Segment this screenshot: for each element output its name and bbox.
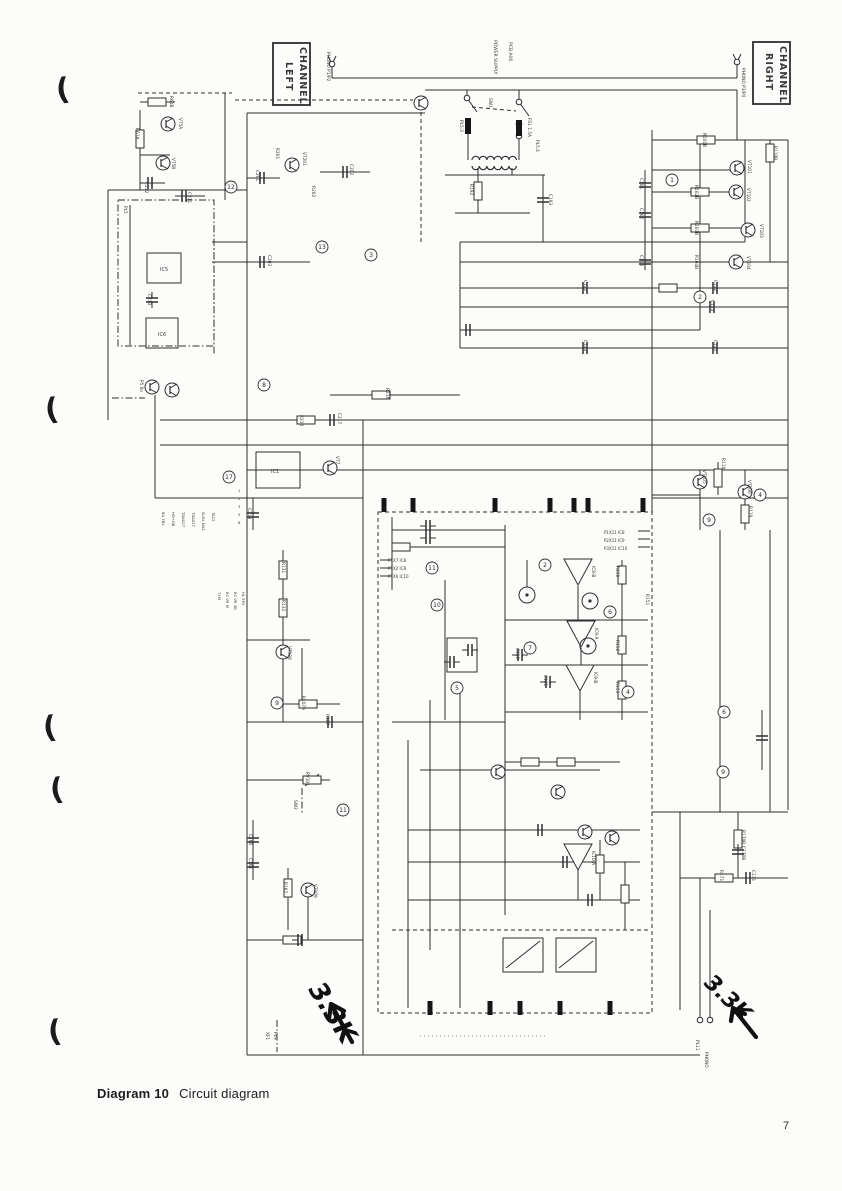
handwritten-3k3-annotation: 3.3K <box>697 971 758 1027</box>
circled-ref-text: 6 <box>722 709 726 716</box>
component-label: FS1 1.5A <box>526 118 532 137</box>
component-label: C202 <box>348 164 354 175</box>
resistor-symbol <box>715 874 733 882</box>
component-label: VT5B <box>170 158 176 169</box>
component-label: R119 <box>747 506 753 517</box>
circled-ref-text: 2 <box>543 562 547 569</box>
circled-ref-text: 4 <box>758 492 762 499</box>
component-label: C211 <box>186 192 192 203</box>
opamp-symbol <box>564 559 592 585</box>
component-label: C110 <box>638 255 644 266</box>
circled-ref-text: 3 <box>369 252 373 259</box>
handwritten-3k3-annotation: 3.3K <box>301 979 365 1049</box>
transformer-coil <box>472 156 516 160</box>
transistor-symbol <box>156 156 170 170</box>
component-label: C101 <box>638 178 644 189</box>
terminal-circle <box>464 95 470 101</box>
connector-pin <box>428 1001 433 1015</box>
binding-mark: ( <box>54 72 71 108</box>
page-number: 7 <box>783 1120 789 1132</box>
opamp-symbol <box>566 665 594 691</box>
component-label: SL84 MA1 <box>201 512 206 531</box>
component-label: R101B <box>701 133 707 147</box>
transistor-symbol <box>161 117 175 131</box>
transistor-symbol <box>145 380 159 394</box>
component-label: C193 <box>547 194 553 205</box>
component-label: R107A <box>300 696 306 710</box>
transistor-symbol <box>741 223 755 237</box>
component-label: P5 6n <box>138 380 144 392</box>
connector-circle <box>588 599 591 602</box>
component-label: R131 <box>280 562 286 573</box>
schematic-wire <box>506 941 540 968</box>
terminal-circle <box>697 1017 703 1023</box>
circled-ref-text: 8 <box>262 382 266 389</box>
component-label: R171 <box>718 870 724 881</box>
component-label: PL5:4 <box>534 140 540 152</box>
circled-ref-text: 4 <box>626 689 630 696</box>
component-label: C122 <box>712 280 718 291</box>
component-label: IC1 <box>271 469 279 475</box>
transistor-symbol <box>729 185 743 199</box>
component-label: T.H5 <box>217 591 222 601</box>
component-label: IC6 <box>158 332 166 338</box>
component-label: R150 <box>614 566 620 577</box>
resistor-symbol <box>392 543 410 551</box>
component-label: C170B <box>740 846 746 860</box>
component-label: C213 <box>146 294 152 305</box>
component-label: POWER SUPPLY <box>492 40 498 75</box>
schematic-wire <box>472 107 516 111</box>
component-label: R61B <box>168 96 174 107</box>
component-label: P1X11 IC8 <box>604 530 625 535</box>
transistor-symbol <box>551 785 565 799</box>
component-label: R118 <box>720 458 726 469</box>
component-label: R152 <box>614 640 620 651</box>
resistor-symbol <box>474 182 482 200</box>
component-label: PHONO P1/P2 <box>325 52 331 82</box>
connector-pin <box>548 498 553 512</box>
component-label: IC5 <box>160 267 168 273</box>
component-label: R110B <box>772 146 778 160</box>
circled-ref-text: 9 <box>275 700 279 707</box>
component-label: 5 <box>238 512 241 517</box>
component-label: PCB A06 <box>507 42 513 61</box>
transistor-symbol <box>578 825 592 839</box>
connector-pin <box>518 1001 523 1015</box>
connector-circle <box>586 644 589 647</box>
component-label: P3X11 IC10 <box>604 546 628 551</box>
component-label: VT102 <box>745 188 751 202</box>
component-label: C212 <box>143 182 149 193</box>
component-label: R201 <box>274 148 280 159</box>
circled-ref-text: 9 <box>721 769 725 776</box>
component-label: C217 <box>336 413 342 424</box>
transistor-symbol <box>491 765 505 779</box>
connector-pin <box>586 498 591 512</box>
schematic-wire <box>559 941 593 968</box>
scanned-page: 12133817911129694105764211LEFTCHANNELRIG… <box>0 0 842 1191</box>
connector-pin <box>411 498 416 512</box>
component-label: R103B <box>693 221 699 235</box>
component-label: C171 <box>750 870 756 881</box>
circled-ref-text: 13 <box>318 244 326 251</box>
resistor-symbol <box>148 98 166 106</box>
component-label: PL9 <box>272 1032 278 1040</box>
component-label: IC9-B <box>592 672 598 683</box>
circled-ref-text: 11 <box>339 807 347 814</box>
component-label: PL5:3 <box>458 120 464 132</box>
component-label: LEFT <box>283 62 294 92</box>
binding-mark: ( <box>48 772 65 808</box>
component-label: C150 <box>514 648 520 659</box>
component-label: R170B <box>740 830 746 844</box>
component-label: R162 <box>282 882 288 893</box>
component-label: RIGHT <box>763 53 774 91</box>
component-label: XF1 <box>264 1032 270 1040</box>
connector-circle <box>525 593 528 596</box>
resistor-symbol <box>596 855 604 873</box>
transistor-symbol <box>605 831 619 845</box>
resistor-symbol <box>659 284 677 292</box>
component-label: C102 <box>638 208 644 219</box>
component-label: PL5 <box>122 206 128 214</box>
circled-ref-text: 17 <box>225 474 233 481</box>
transformer-coil <box>472 166 516 170</box>
component-label: C124 <box>582 340 588 351</box>
component-label: IC8-B <box>590 566 596 577</box>
connector-pin <box>558 1001 563 1015</box>
component-label: R216 <box>384 388 390 399</box>
component-label: TDA027 <box>191 511 196 528</box>
component-label: 6 <box>238 520 241 525</box>
resistor-symbol <box>621 885 629 903</box>
binding-mark: ( <box>43 392 60 428</box>
connector-pin <box>572 498 577 512</box>
component-label: CHANNEL <box>777 46 788 104</box>
fuse-symbol <box>516 120 522 136</box>
component-label: R202 <box>310 186 316 197</box>
component-label: VT106 <box>746 480 752 494</box>
connector-pin <box>488 1001 493 1015</box>
component-label: VT108 <box>286 646 292 660</box>
component-label: R61A <box>134 128 140 139</box>
terminal-circle <box>734 59 740 65</box>
component-label: IC9-A <box>593 628 599 639</box>
component-label: 1 <box>238 488 241 493</box>
component-label: VT7 <box>334 456 340 465</box>
diagram-caption: Diagram 10Circuit diagram <box>97 1086 270 1101</box>
component-label: C151 <box>542 675 548 686</box>
component-label: HL 5PV <box>241 592 246 606</box>
component-label: 3 <box>238 504 241 509</box>
component-label: C107 <box>324 714 330 725</box>
component-label: CHANNEL <box>297 47 308 105</box>
diagram-caption-text: Circuit diagram <box>179 1086 269 1101</box>
component-label: SW2 <box>292 800 298 810</box>
circled-ref-text: 11 <box>428 565 436 572</box>
component-label: P1X7 IC8 <box>388 558 406 563</box>
component-label: P1X2 IC8 <box>388 566 406 571</box>
connector-pin <box>608 1001 613 1015</box>
component-label: VT103 <box>758 224 764 238</box>
component-label: SW1 <box>487 98 493 108</box>
resistor-symbol <box>521 758 539 766</box>
connector-pin <box>382 498 387 512</box>
binding-mark: ( <box>46 1014 63 1050</box>
component-label: VT109 <box>312 884 318 898</box>
terminal-circle <box>516 99 522 105</box>
component-label: C161 <box>247 858 253 869</box>
component-label: TDA027 <box>181 511 186 528</box>
component-label: VT104 <box>745 256 751 270</box>
component-label: PHONO P3/P4 <box>740 68 746 98</box>
diagram-caption-number: Diagram 10 <box>97 1086 169 1101</box>
component-label: HD+D8 <box>171 512 176 527</box>
circled-ref-text: 1 <box>670 177 674 184</box>
component-label: RV101 <box>304 772 310 786</box>
component-label: R153 <box>614 682 620 693</box>
component-label: PL11 <box>694 1040 700 1051</box>
binding-mark: ( <box>41 710 58 746</box>
transistor-symbol <box>165 383 179 397</box>
circled-ref-text: 2 <box>698 294 702 301</box>
component-label: TA12 <box>211 511 216 522</box>
transistor-symbol <box>285 158 299 172</box>
component-label: C125 <box>712 340 718 351</box>
component-label: C201 <box>254 170 260 181</box>
transistor-symbol <box>729 255 743 269</box>
resistor-symbol <box>714 469 722 487</box>
component-label: C160 <box>247 834 253 845</box>
circled-ref-text: 5 <box>455 685 459 692</box>
component-label: R102B <box>693 185 699 199</box>
transistor-symbol <box>414 96 428 110</box>
component-block <box>118 200 214 346</box>
circuit-schematic: 12133817911129694105764211LEFTCHANNELRIG… <box>0 0 842 1191</box>
circled-ref-text: 7 <box>528 645 532 652</box>
circled-ref-text: 12 <box>227 184 235 191</box>
component-label: R192 <box>468 184 474 195</box>
component-label: C123 <box>709 300 715 311</box>
circled-ref-text: 10 <box>433 602 441 609</box>
component-label: R132 <box>280 600 286 611</box>
component-label: VT101 <box>746 160 752 174</box>
component-label: PHONO <box>703 1052 709 1068</box>
resistor-symbol <box>557 758 575 766</box>
transistor-symbol <box>730 161 744 175</box>
component-label: RC VR 3B <box>233 592 238 610</box>
component-label: IC10-A <box>590 851 596 865</box>
component-label: VT105 <box>701 470 707 484</box>
component-label: VT201 <box>301 152 307 166</box>
fuse-symbol <box>465 118 471 134</box>
terminal-circle <box>707 1017 713 1023</box>
component-label: C121 <box>582 280 588 291</box>
circled-ref-text: 6 <box>608 609 612 616</box>
component-label: R104B <box>693 255 699 269</box>
component-label: P2X11 IC9 <box>604 538 625 543</box>
component-label: P1X6 IC10 <box>388 574 409 579</box>
component-label: RC VR M <box>225 592 230 608</box>
opamp-symbol <box>564 844 592 870</box>
component-label: R151 <box>644 594 650 605</box>
circled-ref-text: 9 <box>707 517 711 524</box>
component-label: C219 <box>246 508 252 519</box>
component-label: R214 <box>298 415 304 426</box>
connector-pin <box>641 498 646 512</box>
connector-pin <box>493 498 498 512</box>
component-label: VT5A <box>177 118 183 129</box>
component-label: 8A 7B4 <box>161 512 166 526</box>
component-label: C203 <box>266 255 272 266</box>
